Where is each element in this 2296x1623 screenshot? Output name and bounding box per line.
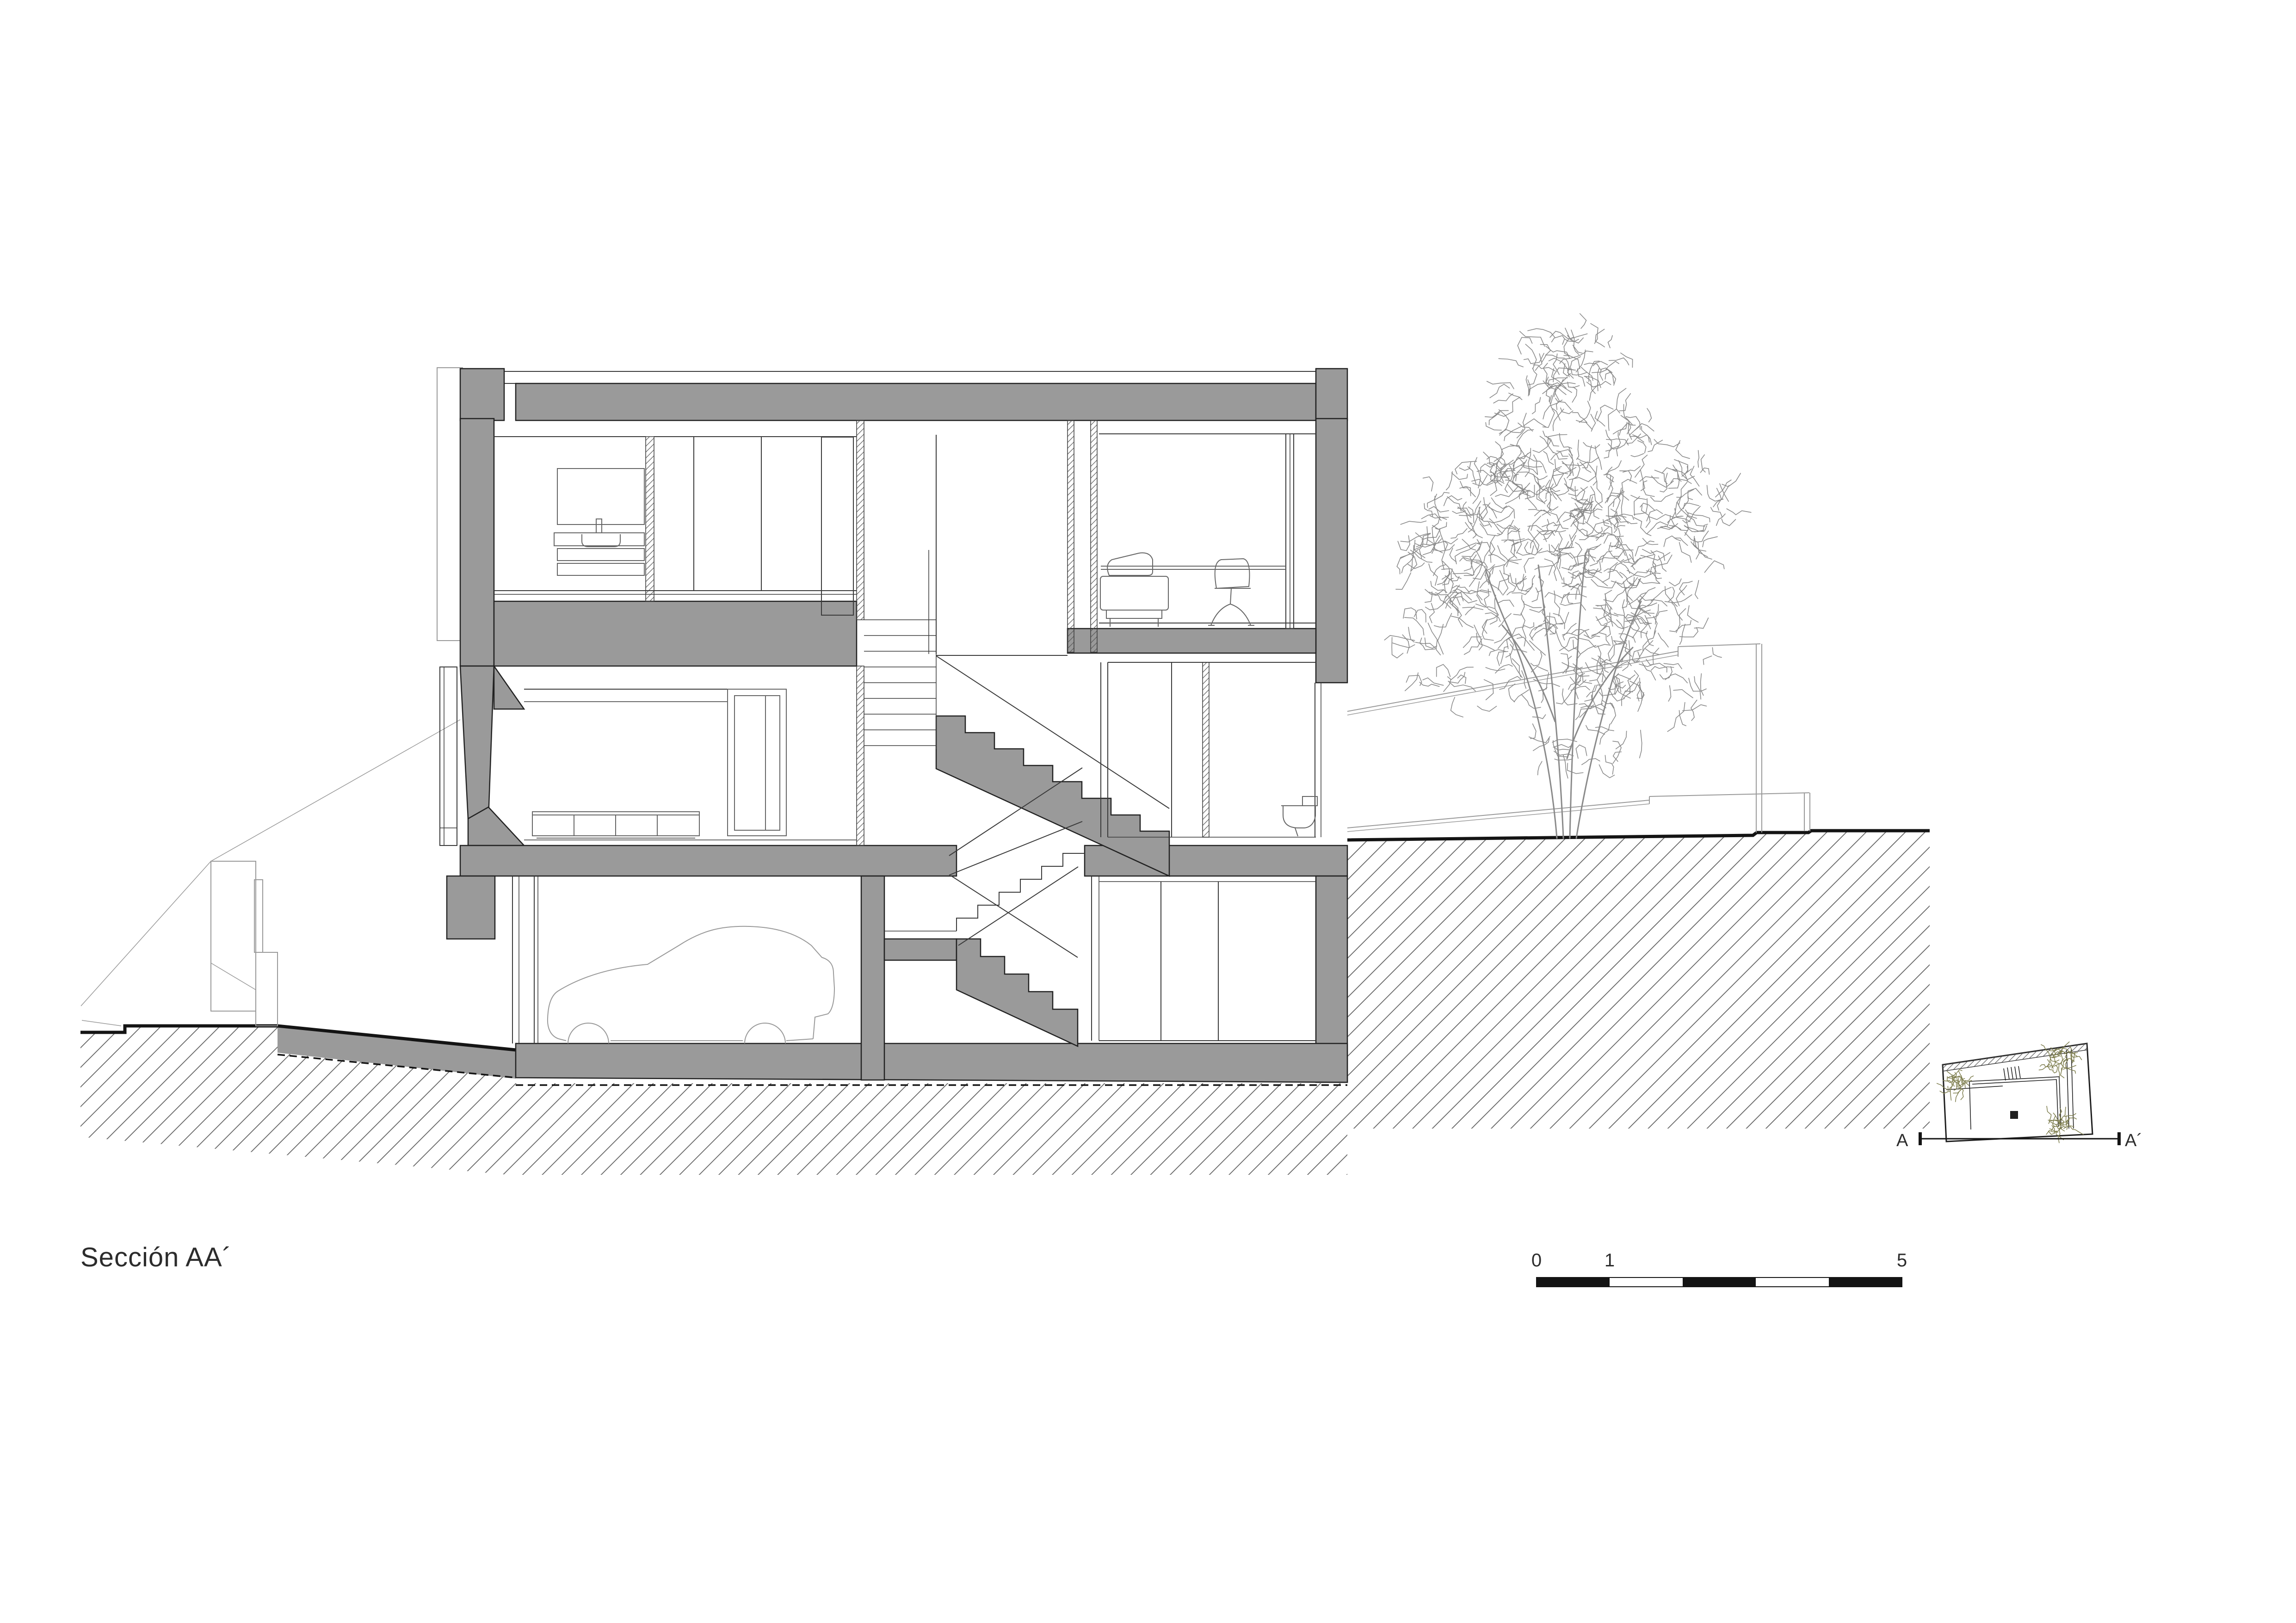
slab-bottom [516,1043,1347,1082]
tree [1384,314,1751,838]
left-boundary-walls [81,720,460,1026]
office-chair [1208,559,1254,625]
stair-rail-lower-2 [958,867,1078,945]
partition-hall-cavity-2 [1091,420,1097,652]
garden-wall-lower-top2 [1347,804,1649,832]
boundary-wall-lower [256,952,278,1026]
stair-landing-cut [884,939,957,960]
kerb-line [82,1020,121,1026]
parapet-left [460,369,504,420]
key-plan-label-a-prime: A´ [2125,1131,2142,1150]
section-drawing: A A´ 0 1 5 Sección AA´ [0,0,2296,1623]
slab-upper-right [1068,629,1316,653]
car-silhouette [548,926,834,1043]
living-sideboard [532,812,699,838]
boundary-wall-top-edge-2 [211,720,460,861]
vanity-basin [582,534,620,547]
wall-over-garage-door [447,876,495,939]
bedroom-desk [1101,566,1286,569]
scale-label-5: 5 [1897,1250,1907,1271]
wardrobe-door-leaf [821,437,853,615]
garden-wall-upper-cap [1678,644,1760,647]
key-plan-label-a: A [1896,1131,1908,1150]
toilet [1281,796,1317,836]
stair-rail-lower-1 [949,821,1082,875]
partition-bathroom [646,437,654,601]
wall-beyond-left [437,368,463,641]
boundary-wall-diagonal [211,963,256,990]
stair-flight-lower-cut [957,939,1078,1046]
boundary-wall-top-edge [81,861,211,1006]
partition-toilet [1203,662,1209,837]
vanity-drawer-2 [557,563,644,575]
drawing-title: Sección AA´ [80,1242,232,1272]
scale-bar: 0 1 5 [1531,1250,1907,1287]
roof-slab [516,383,1316,420]
slab-upper-left [494,601,857,666]
boundary-wall-panel [211,861,256,1011]
wall-right-upper [1316,419,1347,683]
parapet-right [1316,369,1347,420]
drawing-sheet: A A´ 0 1 5 Sección AA´ [0,0,2296,1623]
garden-wall-lower-cap [1649,793,1809,796]
spine-wall-basement [861,876,884,1080]
bathroom-mirror [557,469,644,525]
partition-hall-cavity-1 [1068,420,1074,652]
building-section [437,368,1347,1082]
bathroom-faucet [592,519,606,533]
garden-wall-lower-top [1347,800,1649,828]
stair-flight-upper-cut [936,716,1169,876]
wall-left-middle [460,666,494,819]
scale-bar-seg-2 [1683,1277,1756,1287]
slab-middle-left [460,845,957,876]
partition-closet-hall [857,420,864,620]
bedroom-armchair [1100,553,1168,627]
tree-foliage [1384,314,1751,778]
vanity-counter [554,533,644,546]
soffit-wedge-left [494,666,524,709]
window-left-frame [440,667,457,845]
garden-walls [1347,644,1810,833]
scale-label-1: 1 [1605,1250,1615,1271]
scale-bar-seg-1 [1537,1277,1610,1287]
vanity-drawer-1 [557,549,644,561]
roof-membrane [504,371,1316,383]
scale-bar-seg-3 [1829,1277,1902,1287]
tall-cupboard [728,689,786,836]
key-plan: A A´ [1896,1042,2142,1150]
stair-treads-elevation [864,620,936,749]
partition-middle-floor [857,666,864,845]
wall-left-upper [460,419,494,666]
scale-label-0: 0 [1531,1250,1542,1271]
